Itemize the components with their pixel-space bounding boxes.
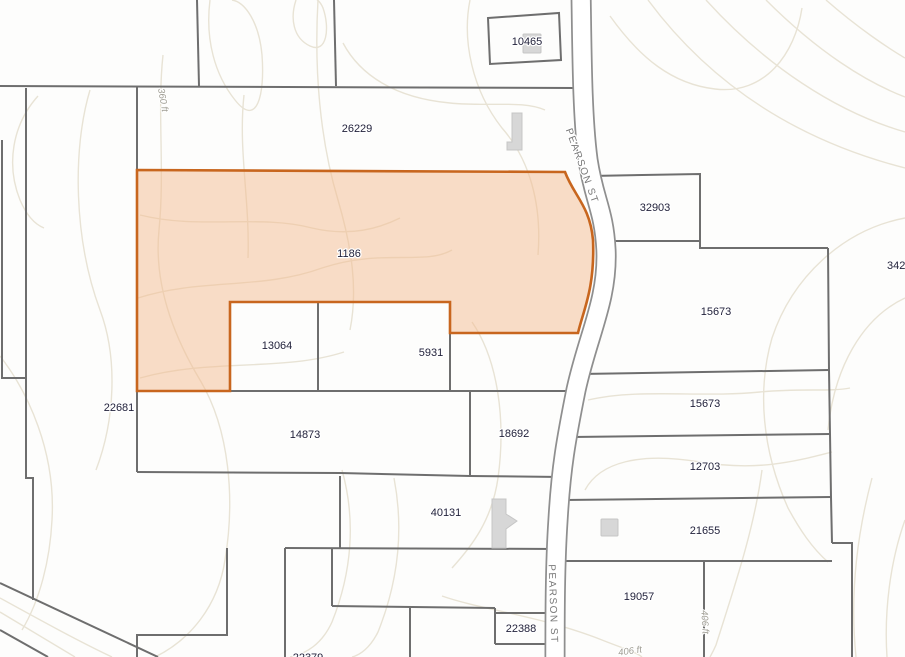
- map-canvas[interactable]: 10465 26229 32903 1186 342 15673 13064 5…: [0, 0, 905, 657]
- parcel-label-14873: 14873: [290, 429, 321, 441]
- contour-label-406ft-vertical: 406 ft: [698, 610, 710, 635]
- parcel-label-18692: 18692: [499, 428, 530, 440]
- parcel-map-svg[interactable]: 10465 26229 32903 1186 342 15673 13064 5…: [0, 0, 905, 657]
- building-footprint: [507, 113, 522, 150]
- building-footprint: [601, 519, 618, 536]
- parcel-label-40131: 40131: [431, 507, 462, 519]
- building-footprint: [492, 499, 517, 548]
- parcel-label-22388: 22388: [506, 623, 537, 635]
- parcel-label-21655: 21655: [690, 525, 721, 537]
- contour-label-360ft: 360 ft: [155, 87, 170, 113]
- parcel-label-12703: 12703: [690, 461, 721, 473]
- parcel-label-10465: 10465: [512, 36, 543, 48]
- parcel-label-15673-a: 15673: [701, 306, 732, 318]
- parcel-label-13064: 13064: [262, 340, 293, 352]
- parcel-label-5931: 5931: [419, 347, 443, 359]
- parcel-label-22681: 22681: [104, 402, 135, 414]
- parcel-label-32903: 32903: [640, 202, 671, 214]
- highlighted-parcel-1186[interactable]: [137, 170, 593, 391]
- parcel-label-19057: 19057: [624, 591, 655, 603]
- parcel-label-15673-b: 15673: [690, 398, 721, 410]
- contour-label-406ft-horizontal: 406 ft: [618, 644, 643, 657]
- parcel-label-342: 342: [887, 260, 905, 272]
- parcel-label-1186: 1186: [337, 248, 361, 260]
- parcel-label-26229: 26229: [342, 123, 373, 135]
- parcel-boundaries: [0, 0, 852, 657]
- parcel-label-22379: 22379: [293, 652, 324, 657]
